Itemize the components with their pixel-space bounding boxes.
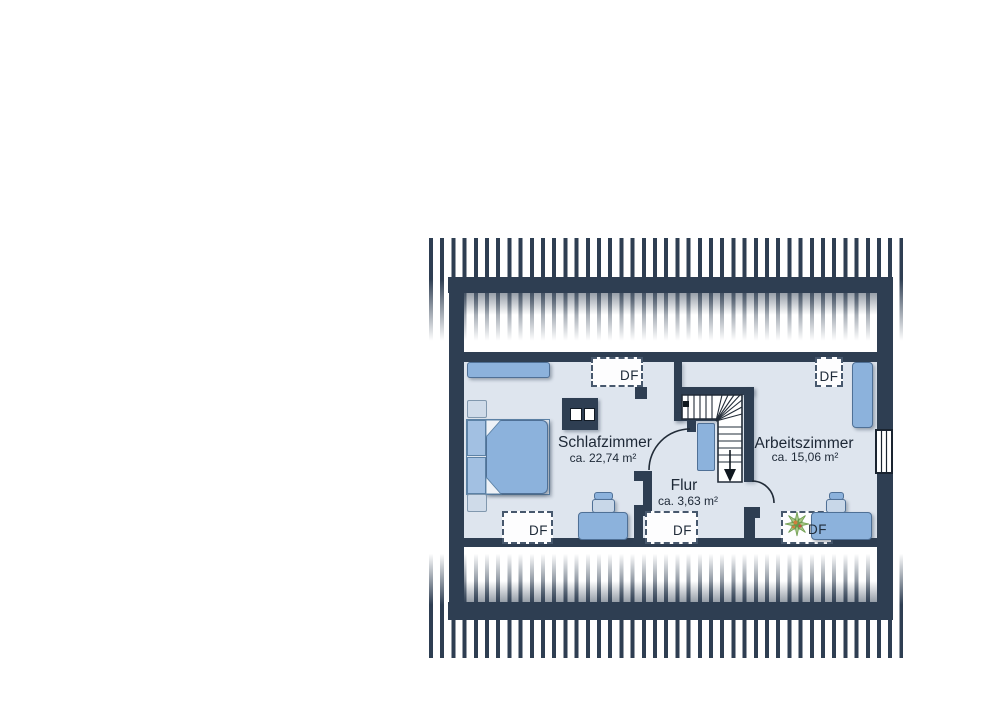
roof-window-label: DF — [645, 523, 692, 538]
wall-exterior-right — [877, 277, 893, 620]
room-area-arbeitszimmer: ca. 15,06 m² — [772, 450, 839, 464]
room-area-flur: ca. 3,63 m² — [658, 494, 718, 508]
wall-under-stair — [674, 413, 718, 421]
chimney — [635, 387, 647, 399]
roof-edge-bottom-shadow — [464, 581, 877, 602]
dresser-drawer — [584, 408, 595, 421]
room-area-schlafzimmer: ca. 22,74 m² — [570, 451, 637, 465]
roof-window-label: DF — [781, 522, 827, 537]
room-name-flur: Flur — [671, 477, 698, 495]
wall-schlafzimmer-flur-lower — [634, 514, 643, 538]
desk — [578, 512, 628, 540]
pillow — [467, 420, 486, 456]
swivel-chair — [826, 499, 846, 513]
pillow — [467, 457, 486, 494]
roof-edge-bottom — [448, 602, 893, 620]
roof-edge-top — [448, 277, 893, 293]
wall-door1-jamb — [687, 421, 696, 432]
floor-plan: DF DF DF DF DF Schlafzimmer ca. 22,74 m²… — [0, 0, 1000, 706]
roof-window-label: DF — [815, 369, 843, 384]
dresser — [562, 398, 598, 430]
wall-flur-jamb-top — [634, 471, 652, 481]
wall-exterior-left — [449, 277, 464, 620]
wall-flur-arbeitszimmer-lower — [744, 507, 755, 538]
swivel-chair — [592, 499, 615, 513]
roof-window-label: DF — [502, 523, 548, 538]
wardrobe — [697, 423, 715, 471]
roof-edge-top-shadow — [464, 293, 877, 315]
room-name-schlafzimmer: Schlafzimmer — [558, 434, 652, 452]
dresser-drawer — [570, 408, 582, 421]
wall-stair-right — [744, 387, 754, 482]
roof-window-label: DF — [591, 368, 639, 383]
nightstand — [467, 494, 487, 512]
nightstand — [467, 400, 487, 418]
cabinet — [852, 362, 873, 428]
bed-duvet — [486, 420, 548, 494]
sideboard — [467, 362, 550, 378]
